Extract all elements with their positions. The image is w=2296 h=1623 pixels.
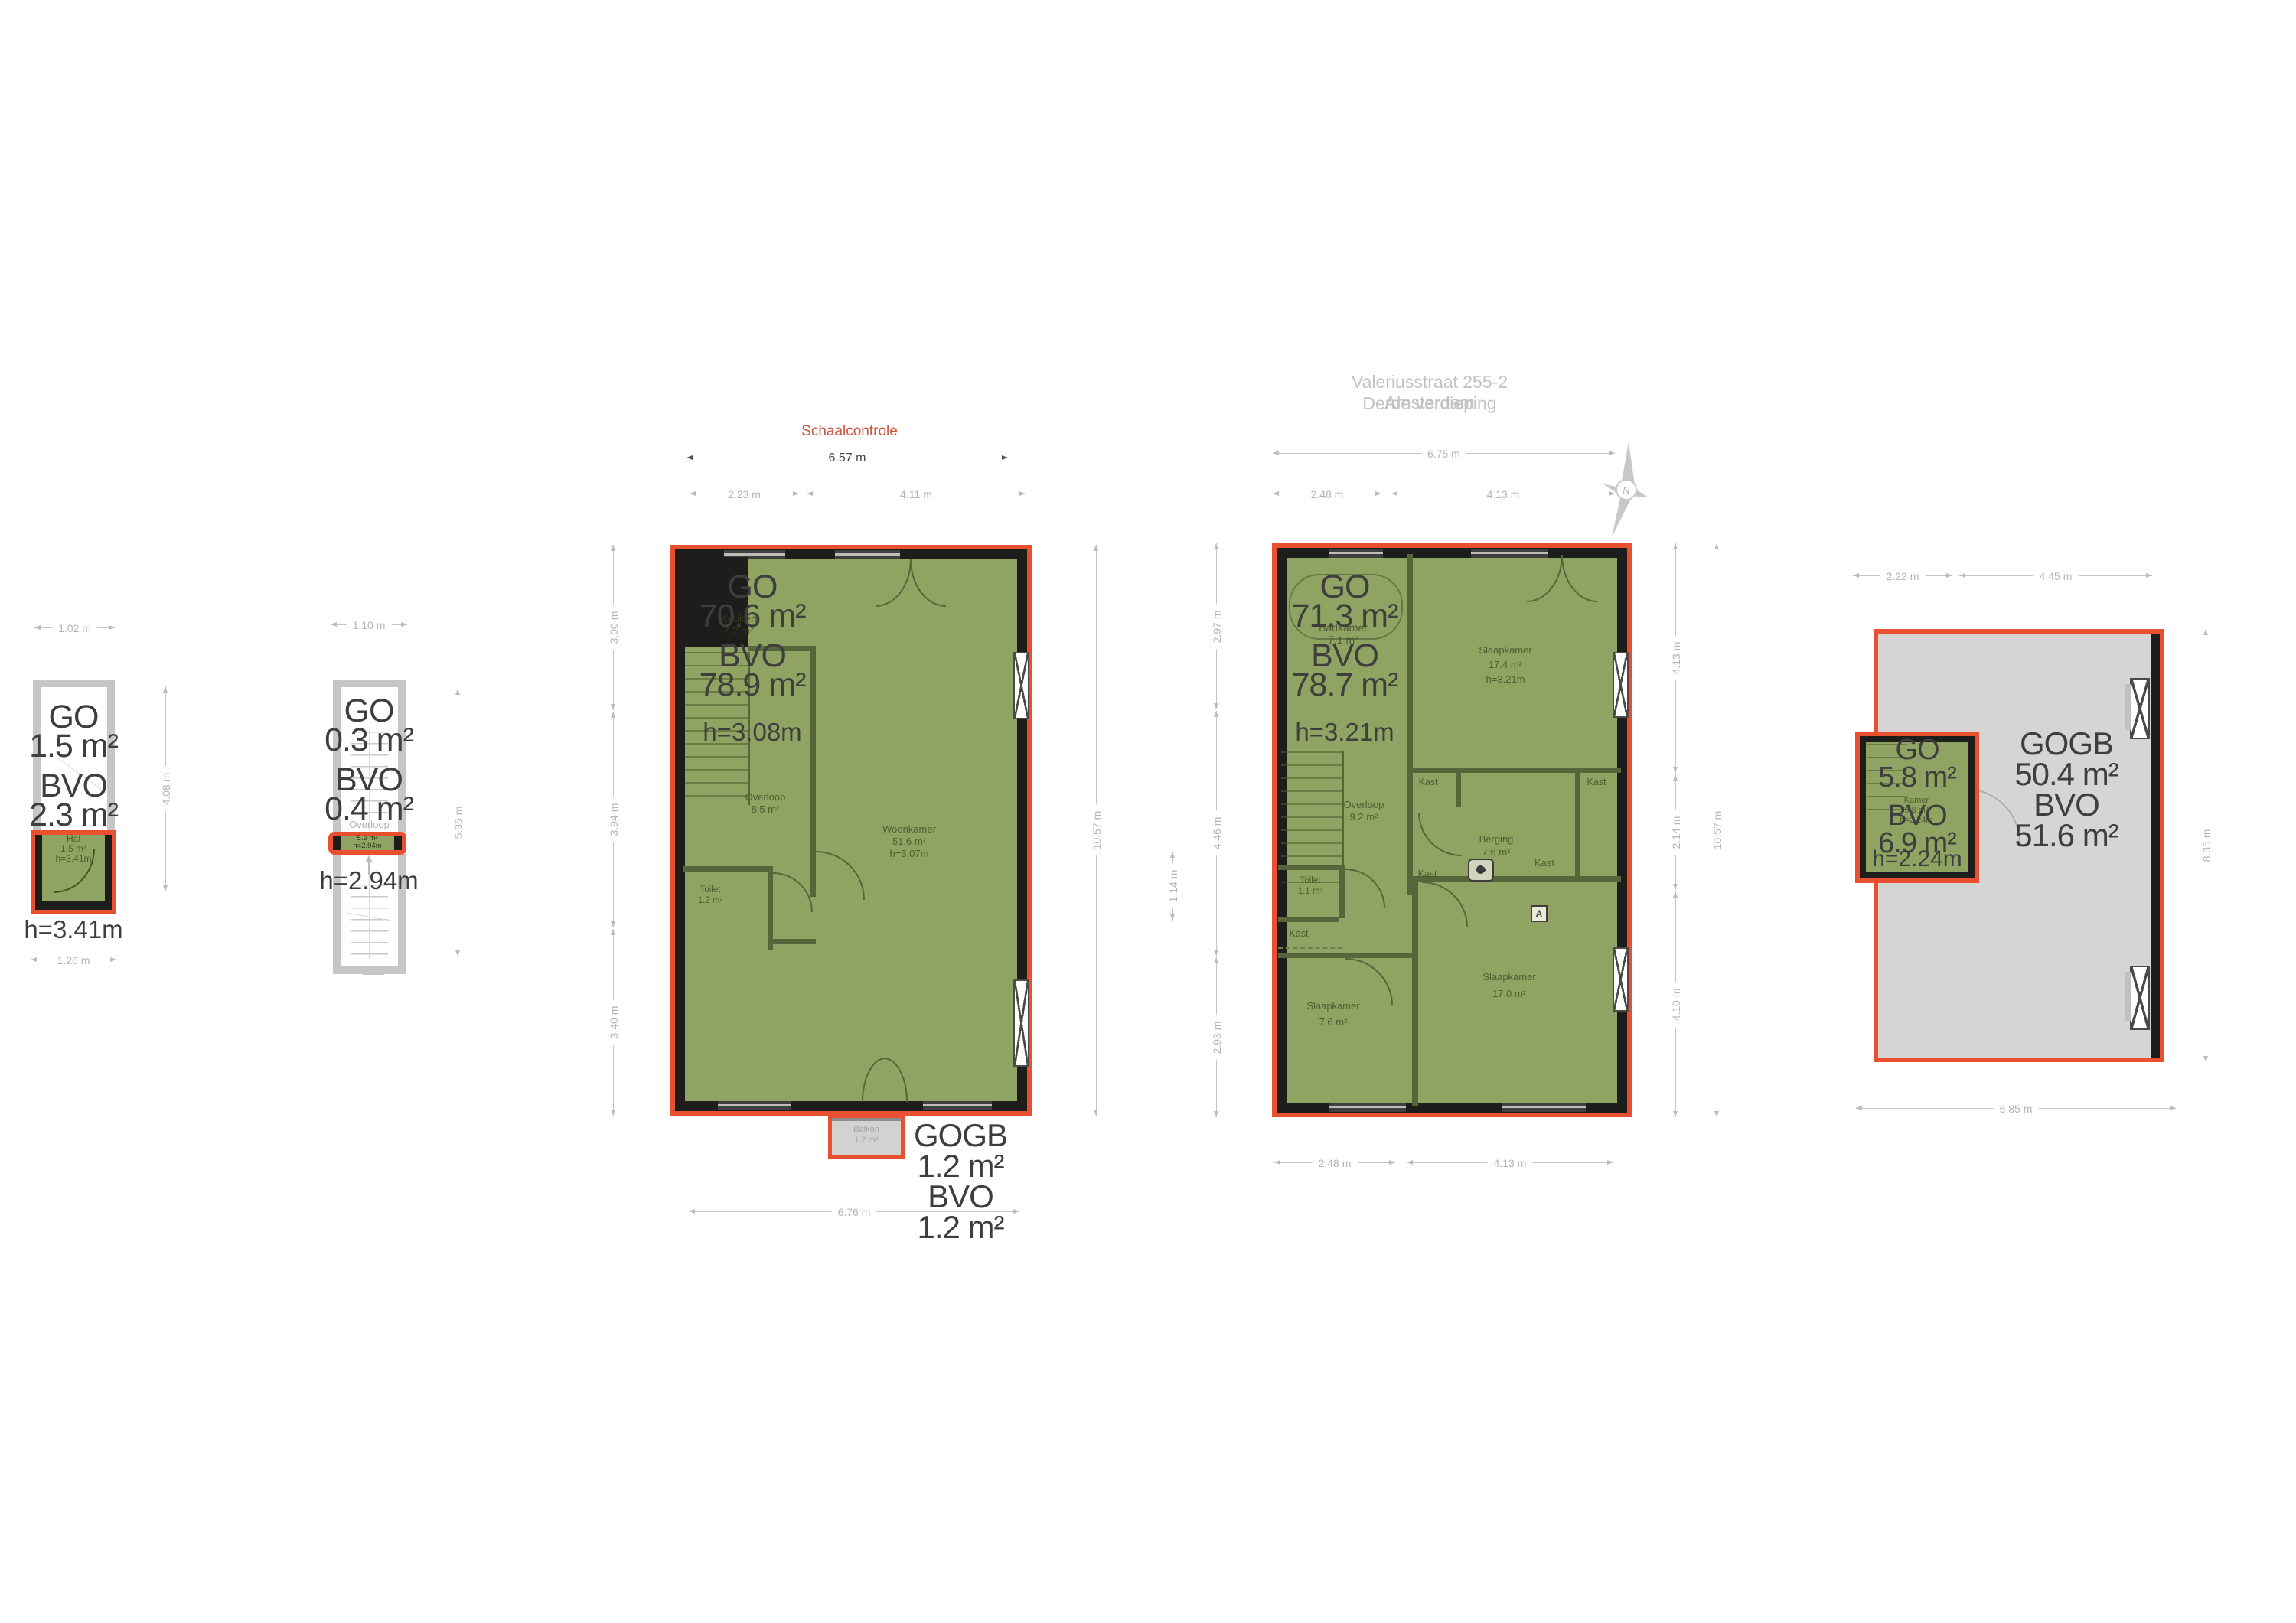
dim-main-left-1: 3.00 m — [613, 545, 614, 710]
kast-label: Kast — [1523, 857, 1566, 869]
dim-attic-bottom: 6.85 m — [1856, 1108, 2176, 1109]
main-gogb-block: GOGB 1.2 m² BVO 1.2 m² — [903, 1120, 1018, 1243]
wall — [1278, 865, 1339, 870]
kast-dashed-line — [1278, 947, 1342, 949]
wall — [683, 866, 773, 872]
dim-label: 1.02 m — [52, 622, 97, 634]
room-label-toilet: Toilet 1.2 m² — [687, 885, 733, 906]
window-icon — [2130, 966, 2150, 1030]
room-label-overloop-derde: Overloop 9.2 m² — [1326, 799, 1402, 823]
wall — [2151, 634, 2160, 1058]
overloop-area-block: GO 0.3 m² BVO 0.4 m² — [315, 696, 422, 823]
kast-label: Kast — [1407, 776, 1450, 788]
dim-main-top-1: 2.23 m — [690, 494, 799, 494]
wall — [1413, 768, 1621, 773]
window-ledge — [2125, 684, 2131, 730]
dim-derde-left-3: 2.93 m — [1216, 957, 1217, 1117]
stair-direction-arrow — [365, 855, 373, 862]
dim-main-left-3: 3.40 m — [613, 929, 614, 1116]
window-ledge — [2125, 972, 2131, 1021]
dim-derde-right-2: 2.14 m — [1675, 774, 1676, 890]
derde-height-label: h=3.21m — [1272, 718, 1417, 747]
derde-area-block: GO 71.3 m² BVO 78.7 m² — [1272, 572, 1417, 699]
dim-main-left-2: 3.94 m — [613, 712, 614, 927]
window-icon — [1329, 549, 1383, 558]
room-label-slaapkamer-klein: Slaapkamer 7.6 m² — [1283, 998, 1383, 1030]
north-compass-icon: N — [1598, 441, 1653, 539]
dim-derde-bottom-1: 2.48 m — [1274, 1162, 1395, 1163]
dim-derde-top-1: 2.48 m — [1273, 494, 1381, 494]
wall — [1339, 865, 1345, 918]
dim-main-top-2: 4.11 m — [807, 494, 1026, 494]
room-label-balkon: Balkon 1.2 m² — [832, 1124, 901, 1146]
dim-overloop-right: 5.36 m — [458, 689, 458, 957]
dim-main-right-total: 10.57 m — [1096, 545, 1097, 1116]
dim-hal-bottom: 1.26 m — [31, 960, 116, 960]
hal-area-block: GO 1.5 m² BVO 2.3 m² — [5, 702, 142, 829]
floorplan-sheet: 1.02 m GO 1.5 m² BVO 2.3 m² Hal 1.5 m² h… — [0, 0, 2296, 1623]
hal-height-label: h=3.41m — [5, 915, 142, 944]
dim-attic-right: 8.35 m — [2206, 629, 2206, 1062]
window-icon — [1013, 979, 1029, 1067]
wall — [1456, 773, 1461, 807]
door-stub — [363, 966, 384, 975]
window-icon — [923, 1101, 992, 1110]
wall — [42, 901, 105, 910]
window-icon — [1613, 652, 1629, 718]
window-icon — [1329, 1103, 1406, 1112]
window-icon — [1013, 652, 1029, 719]
window-icon — [718, 1101, 791, 1110]
boiler-icon — [1468, 859, 1494, 882]
dim-derde-right-1: 4.13 m — [1675, 543, 1676, 773]
kast-label: Kast — [1406, 868, 1449, 880]
overloop-height-label: h=2.94m — [315, 866, 422, 895]
wall — [1278, 953, 1413, 958]
window-icon — [835, 550, 900, 559]
dim-derde-top-total: 6.75 m — [1273, 453, 1615, 454]
room-label-slaapkamer-voor: Slaapkamer 17.4 m² h=3.21m — [1456, 643, 1555, 686]
main-height-label: h=3.08m — [680, 718, 825, 747]
dim-overloop-top: 1.10 m — [331, 624, 407, 625]
dim-hal-top: 1.02 m — [34, 627, 115, 628]
attic-area-block: GO 5.8 m² BVO 6.9 m² — [1855, 736, 1979, 857]
balkon-box: Balkon 1.2 m² — [828, 1114, 905, 1159]
attic-height-label: h=2.24m — [1855, 846, 1979, 872]
dim-derde-left-2: 4.46 m — [1216, 711, 1217, 956]
room-label-toilet-derde: Toilet 1.1 m² — [1287, 875, 1333, 897]
room-label-overloop: 5.9 m² h=2.94m — [333, 835, 402, 850]
wall — [768, 866, 773, 950]
dim-derde-right-total: 10.57 m — [1717, 543, 1717, 1117]
svg-text:N: N — [1623, 484, 1630, 496]
document-title-line2: Derde verdieping — [1315, 393, 1544, 414]
main-area-block: GO 70.6 m² BVO 78.9 m² — [680, 572, 825, 699]
kast-label: Kast — [1277, 927, 1320, 940]
window-icon — [1502, 1103, 1586, 1112]
overloop-highlight-strip: 5.9 m² h=2.94m — [328, 832, 406, 855]
dim-derde-right-3: 4.10 m — [1675, 891, 1676, 1117]
window-icon — [1613, 947, 1629, 1012]
room-label-hal: Hal 1.5 m² h=3.41m — [31, 834, 116, 864]
dim-derde-left-inner: 1.14 m — [1172, 852, 1173, 921]
room-label-woonkamer: Woonkamer 51.6 m² h=3.07m — [863, 823, 955, 860]
dim-attic-top-2: 4.45 m — [1959, 575, 2152, 576]
dim-derde-bottom-2: 4.13 m — [1407, 1162, 1613, 1163]
kast-label: Kast — [1575, 776, 1618, 788]
room-label-overloop: Overloop 8.5 m² — [727, 791, 804, 816]
wall — [773, 939, 816, 944]
room-label-berging: Berging 7.6 m² — [1458, 833, 1534, 859]
room-label-slaapkamer-achter: Slaapkamer 17.0 m² — [1459, 969, 1559, 1002]
dim-attic-top-1: 2.22 m — [1853, 575, 1952, 576]
wall — [832, 1118, 901, 1121]
dim-derde-left-1: 2.97 m — [1216, 543, 1217, 709]
dim-derde-top-2: 4.13 m — [1391, 494, 1615, 494]
marker-a: A — [1531, 905, 1548, 922]
attic-gogb-block: GOGB 50.4 m² BVO 51.6 m² — [1990, 728, 2143, 851]
wall — [1575, 773, 1580, 876]
wall — [1412, 880, 1418, 1106]
dim-scale-check: 6.57 m — [687, 458, 1008, 458]
scale-check-label: Schaalcontrole — [777, 423, 922, 440]
wall — [1278, 917, 1339, 922]
dim-hal-right: 4.08 m — [165, 686, 166, 891]
